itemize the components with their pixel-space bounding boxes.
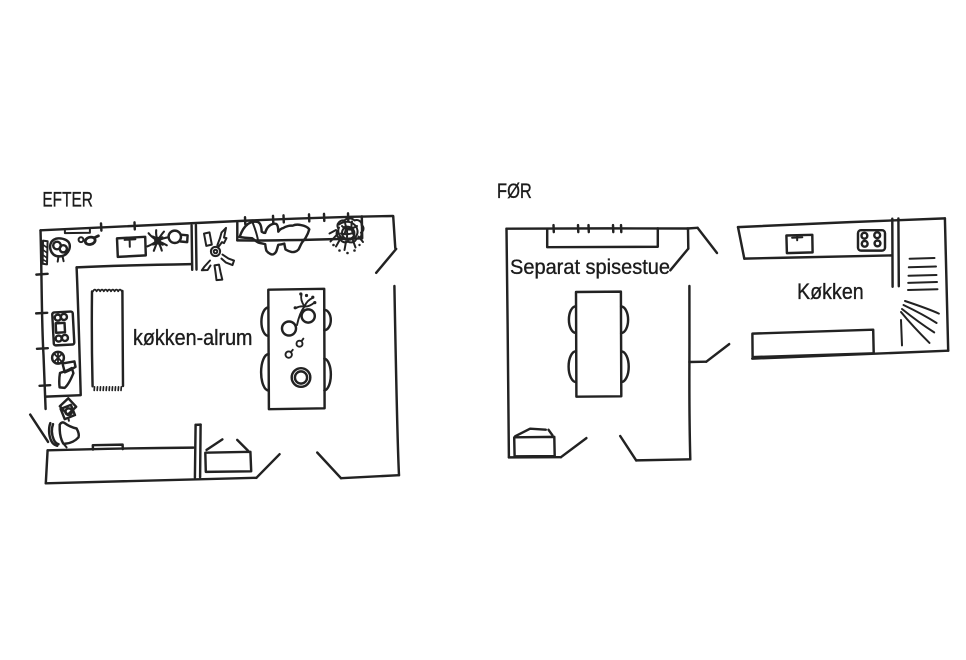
- svg-text:FØR: FØR: [497, 179, 532, 203]
- svg-text:EFTER: EFTER: [42, 188, 93, 212]
- svg-text:køkken-alrum: køkken-alrum: [133, 325, 253, 350]
- svg-text:Separat spisestue: Separat spisestue: [510, 255, 670, 279]
- svg-text:Køkken: Køkken: [797, 279, 864, 304]
